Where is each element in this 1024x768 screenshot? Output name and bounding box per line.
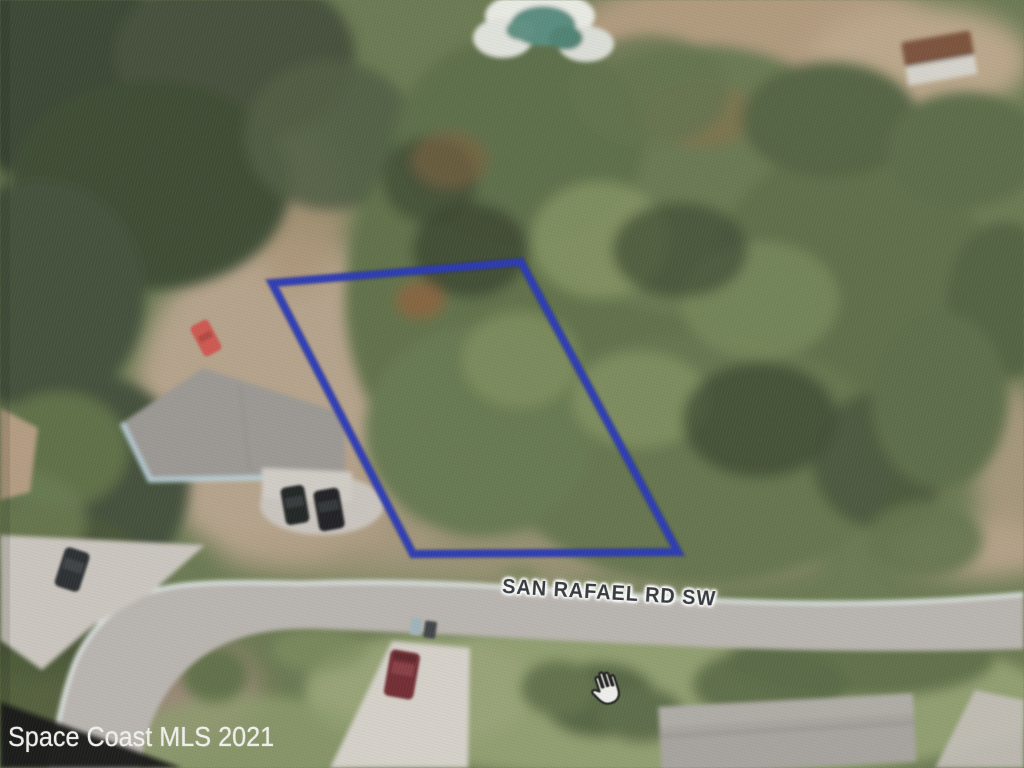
mls-watermark: Space Coast MLS 2021 — [8, 721, 274, 753]
mls-aerial-listing-photo: SAN RAFAEL RD SW Space Coast MLS 2021 — [0, 0, 1024, 768]
aerial-map-view[interactable] — [0, 0, 1024, 768]
aerial-photo-canvas — [0, 0, 1024, 768]
left-edge-shadow — [0, 0, 10, 768]
